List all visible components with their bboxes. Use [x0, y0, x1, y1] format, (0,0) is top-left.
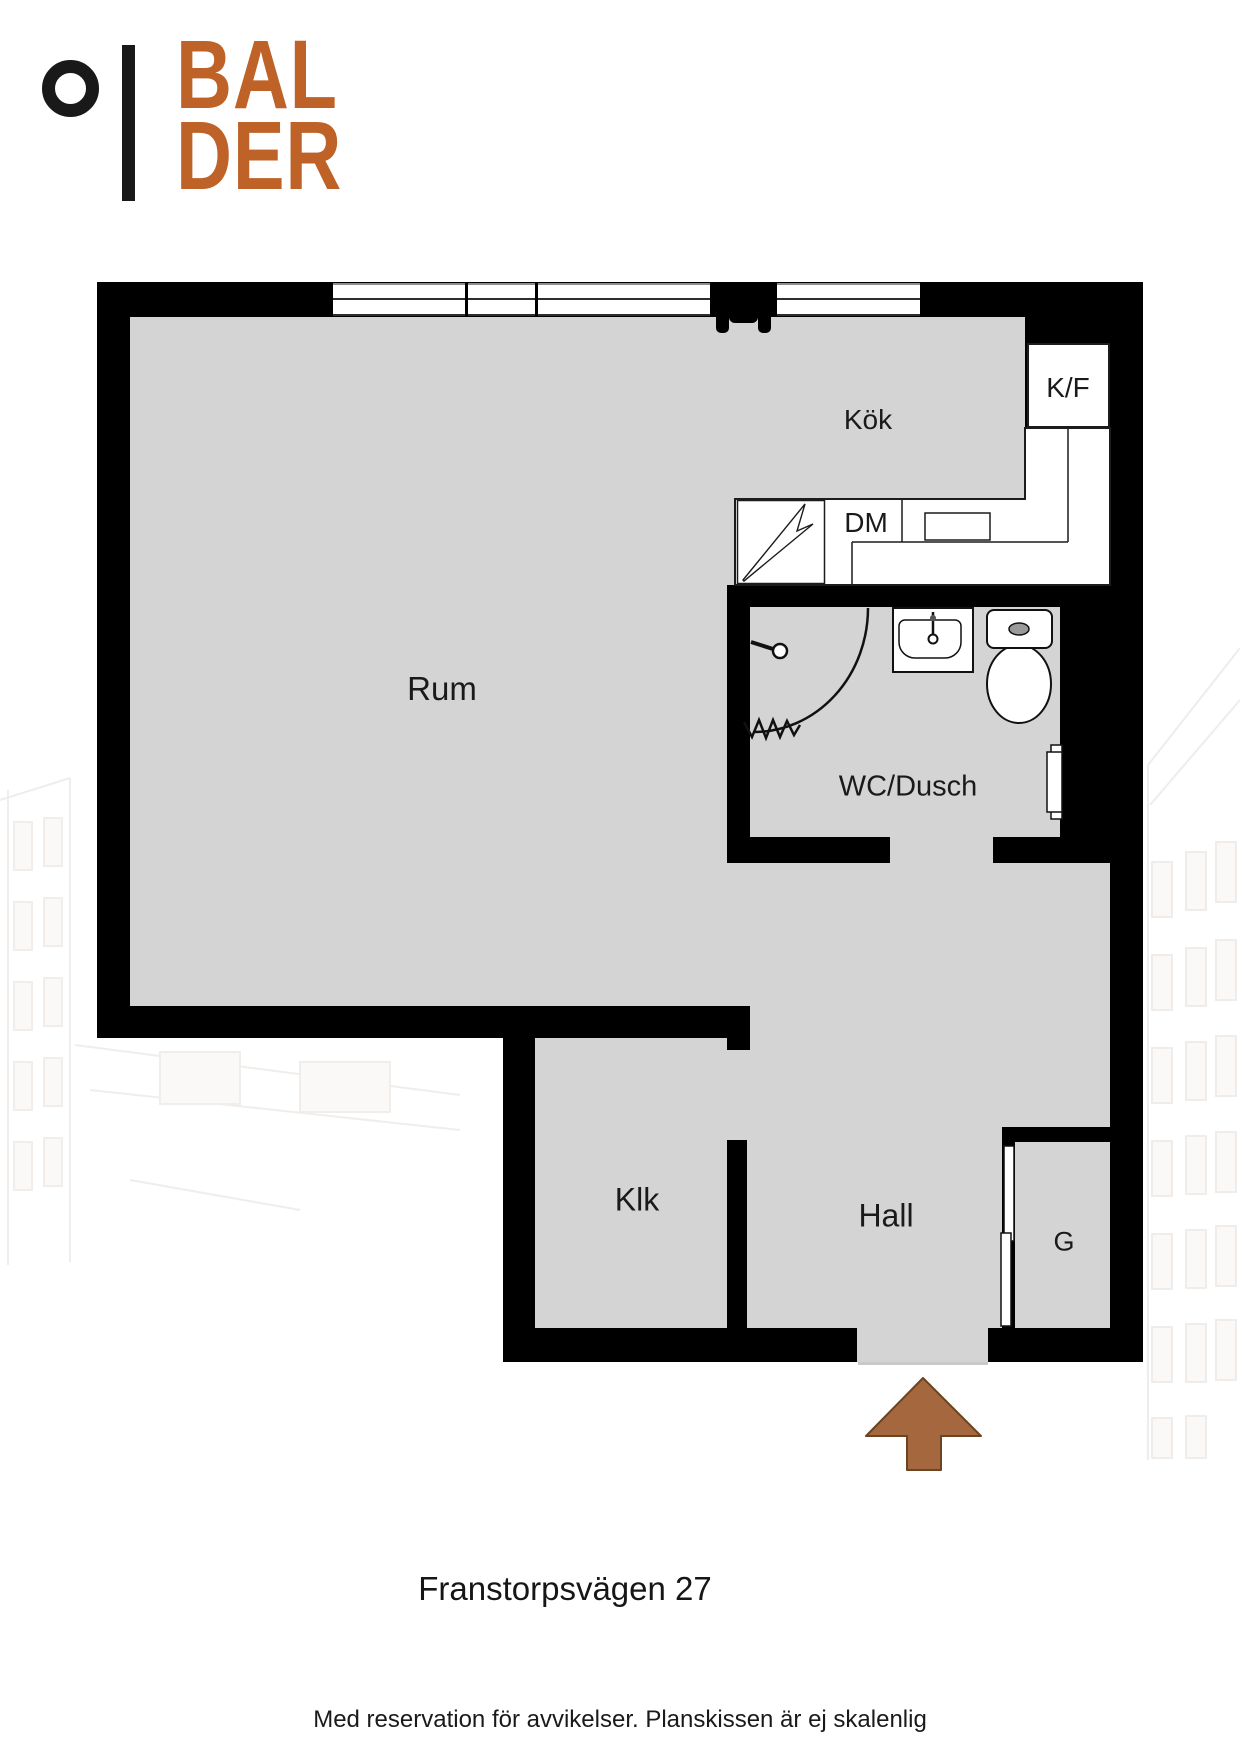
room-label-rum: Rum — [407, 670, 477, 708]
room-label-wc: WC/Dusch — [839, 771, 978, 804]
room-label-hall: Hall — [858, 1198, 913, 1235]
disclaimer-text: Med reservation för avvikelser. Planskis… — [313, 1706, 927, 1734]
room-label-g: G — [1053, 1227, 1074, 1258]
plan-fixtures-layer — [0, 0, 1240, 1754]
kitchen-sink — [925, 513, 990, 540]
label-dm: DM — [844, 507, 888, 539]
sliding-doors-icon — [1001, 1146, 1014, 1326]
label-kf: K/F — [1046, 372, 1090, 404]
toilet-bowl-icon — [987, 645, 1051, 723]
kitchen-counter — [735, 428, 1110, 585]
shower-head-arm — [751, 642, 773, 649]
room-label-kok: Kök — [844, 404, 892, 436]
room-label-klk: Klk — [615, 1182, 659, 1219]
toilet-flush-button — [1009, 623, 1029, 635]
shower-corner-icon — [754, 608, 868, 732]
address-title: Franstorpsvägen 27 — [418, 1570, 712, 1608]
floorplan-page: BAL DER — [0, 0, 1240, 1754]
radiator-icon — [1047, 752, 1062, 812]
shower-head-icon — [773, 644, 787, 658]
shower-curtain-icon — [744, 720, 800, 738]
entrance-arrow-icon — [866, 1378, 981, 1470]
